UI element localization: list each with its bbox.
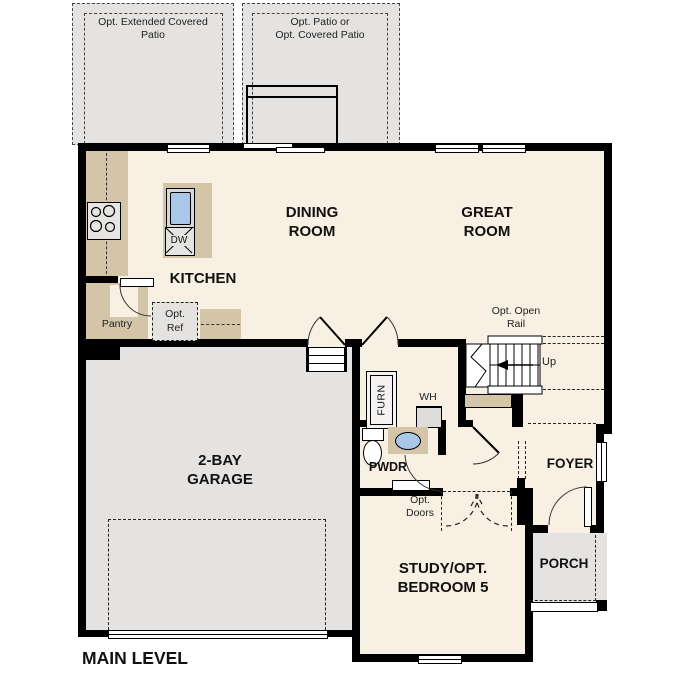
study-label: STUDY/OPT. BEDROOM 5 [361,560,525,598]
wall [517,478,525,525]
plan-title: MAIN LEVEL [82,648,242,670]
counter-edge-line [201,324,240,325]
study-window [418,655,462,664]
powder-label: PWDR [360,460,416,476]
kitchen-sink [170,192,191,225]
dishwasher-label-wrap: DW [165,227,193,254]
window [435,144,479,153]
opt-doors-opening-dash [443,491,510,492]
open-rail-dash [543,343,604,344]
step-line [309,355,344,356]
dining-room-label: DINING ROOM [252,204,372,242]
wall [78,143,612,151]
sliding-door-panel [276,147,325,153]
wall [345,339,362,347]
foyer-label: FOYER [538,456,602,473]
porch-edge-dash [530,600,596,601]
foyer-ceiling-dash [528,423,596,424]
patio-label: Opt. Patio or Opt. Covered Patio [248,16,392,42]
ceiling-break-dash [543,389,604,390]
stairs-up-label: Up [542,356,568,370]
wall [326,630,360,637]
wall [78,630,108,637]
wall [86,276,118,283]
powder-sink [395,432,421,450]
floor-plan: Opt. Ref FURN [0,0,687,687]
wall [458,420,473,427]
wall [604,143,612,424]
opt-refrigerator: Opt. Ref [152,302,198,341]
open-rail-label: Opt. Open Rail [476,305,556,331]
wall [525,525,548,533]
cased-opening-dash [518,441,519,479]
dishwasher-label: DW [170,235,189,246]
porch-label: PORCH [532,556,596,573]
great-room-label: GREAT ROOM [427,204,547,242]
window [167,144,210,153]
pantry-floor [110,285,138,317]
furnace: FURN [366,371,397,429]
water-heater-label: WH [412,391,444,404]
wall [78,143,86,637]
garage-label: 2-BAY GARAGE [160,452,280,490]
powder-threshold [392,480,430,491]
wall [525,496,533,662]
opt-ref-label: Opt. Ref [165,308,185,334]
front-door-leaf [584,487,592,527]
wall [590,525,604,533]
wall [398,339,458,347]
opt-doors-label: Opt. Doors [398,494,442,520]
window [482,144,526,153]
pantry-door-leaf [120,278,154,287]
stove [87,202,121,240]
opt-doors-dash [511,491,512,531]
furnace-label: FURN [376,384,388,415]
garage-door [108,630,328,639]
open-rail-dash [543,336,604,337]
wall [86,343,120,360]
wall [512,390,523,427]
garage-steps [306,347,347,372]
kitchen-label: KITCHEN [160,270,246,289]
porch-step [530,602,598,612]
closet-shelf [464,394,512,408]
extended-patio-label: Opt. Extended Covered Patio [80,16,226,42]
wall [458,339,466,427]
garage-apron-dash [108,519,326,630]
wall [352,347,360,662]
step-line [309,363,344,364]
patio-posts [246,98,338,143]
pantry-label: Pantry [88,318,146,331]
cased-opening-dash [525,441,526,479]
patio-beam [246,85,338,98]
water-heater [416,406,442,428]
